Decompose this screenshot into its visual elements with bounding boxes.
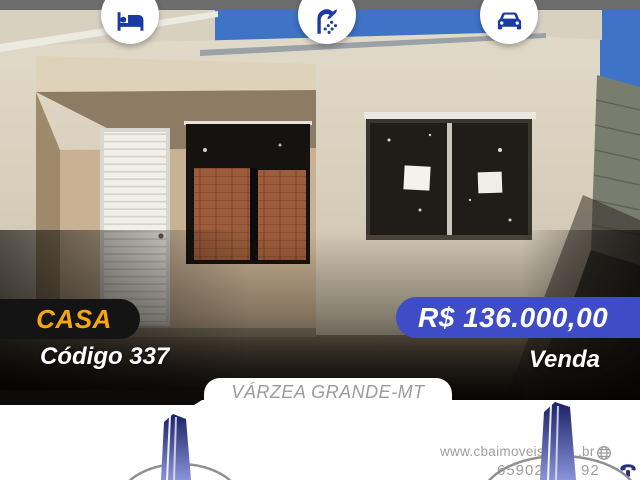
location-label: VÁRZEA GRANDE-MT [231, 382, 424, 403]
main-window [364, 112, 536, 240]
bed-icon [115, 6, 146, 37]
shower-icon [312, 6, 343, 37]
property-type-badge: CASA [0, 299, 140, 339]
property-code-label: Código 337 [40, 343, 169, 371]
car-icon [494, 6, 525, 37]
photo-bottom-cut [0, 390, 218, 405]
bottom-band: www.cbaimoveis. .br 65902 92 [0, 400, 640, 480]
agency-logo-left [112, 408, 252, 480]
property-photo [0, 0, 640, 400]
agency-logo-right [440, 396, 640, 480]
price-label: R$ 136.000,00 [418, 302, 608, 334]
property-type-label: CASA [36, 304, 112, 335]
price-badge: R$ 136.000,00 [396, 297, 640, 338]
real-estate-flyer: www.cbaimoveis. .br 65902 92 [0, 0, 640, 480]
location-tab: VÁRZEA GRANDE-MT [204, 378, 452, 406]
transaction-label: Venda [529, 346, 600, 374]
